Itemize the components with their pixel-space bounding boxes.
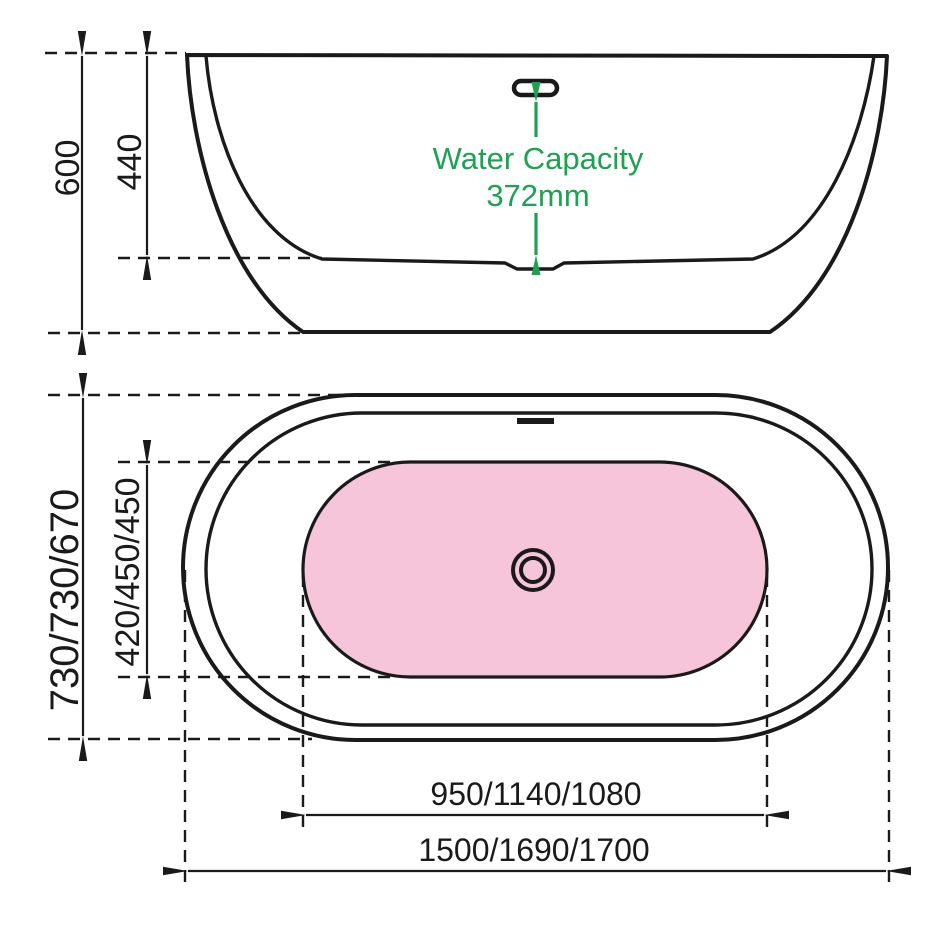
basin-floor (303, 462, 767, 677)
side-view: Water Capacity 372mm 600 440 (45, 53, 887, 333)
overflow-outlet (514, 81, 557, 95)
dim-label-overall-height: 600 (49, 140, 87, 197)
dim-label-inner-depth: 440 (111, 134, 149, 191)
diagram-svg: Water Capacity 372mm 600 440 730/730/ (0, 0, 947, 947)
dim-label-inner-length: 950/1140/1080 (430, 776, 641, 812)
dim-label-overall-width: 730/730/670 (43, 489, 87, 711)
dim-label-inner-width: 420/450/450 (109, 477, 147, 666)
water-capacity-label: Water Capacity (433, 141, 644, 176)
plan-view: 730/730/670 420/450/450 950/1140/1080 15… (43, 395, 889, 885)
dim-label-overall-length: 1500/1690/1700 (418, 832, 649, 868)
water-capacity-value: 372mm (486, 178, 589, 213)
bathtub-dimension-diagram: Water Capacity 372mm 600 440 730/730/ (0, 0, 947, 947)
